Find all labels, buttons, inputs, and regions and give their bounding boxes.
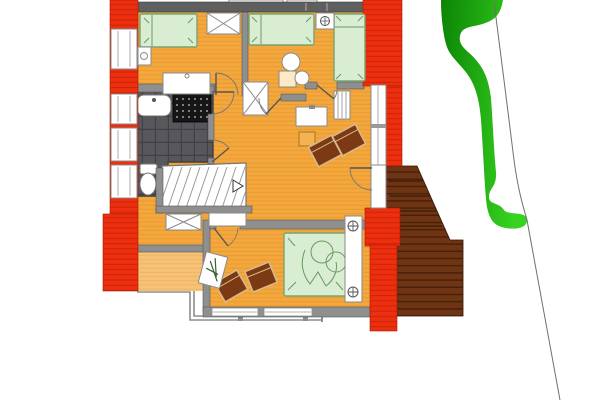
chimney-shaft-top [207, 13, 240, 34]
lamp-symbol-bottom [348, 287, 358, 297]
staircase [158, 163, 254, 212]
window-west-bath-1 [111, 94, 137, 124]
radiator [334, 91, 350, 119]
window-west-bedroom [111, 29, 137, 69]
lamp-symbol-top [348, 221, 358, 231]
desk-nw [163, 73, 210, 94]
headboard [345, 216, 362, 302]
bed-n [249, 14, 314, 45]
double-bed-south [284, 233, 348, 296]
living-sideboard [296, 105, 327, 126]
balcony-door-opening [371, 165, 386, 208]
floor-terrace [138, 252, 203, 291]
window-west-bath-3 [111, 165, 137, 198]
toilet [140, 164, 157, 195]
chimney-shaft-mid [243, 82, 268, 115]
bed-ne [334, 14, 365, 81]
bed-nw [140, 14, 197, 47]
nightstand-n [316, 13, 334, 29]
nightstand-nw [138, 47, 151, 65]
hall-crossed-dresser [166, 214, 201, 230]
hall-sideboard [209, 213, 246, 226]
living-stool [299, 132, 315, 146]
window-south-2 [264, 308, 312, 316]
floor-plan-drawing [0, 0, 600, 400]
window-south-1 [212, 308, 258, 316]
washbasin [137, 95, 171, 116]
floor-plan-canvas [0, 0, 600, 400]
window-east-living [371, 85, 386, 166]
window-west-bath-2 [111, 128, 137, 161]
north-wall [138, 2, 366, 12]
